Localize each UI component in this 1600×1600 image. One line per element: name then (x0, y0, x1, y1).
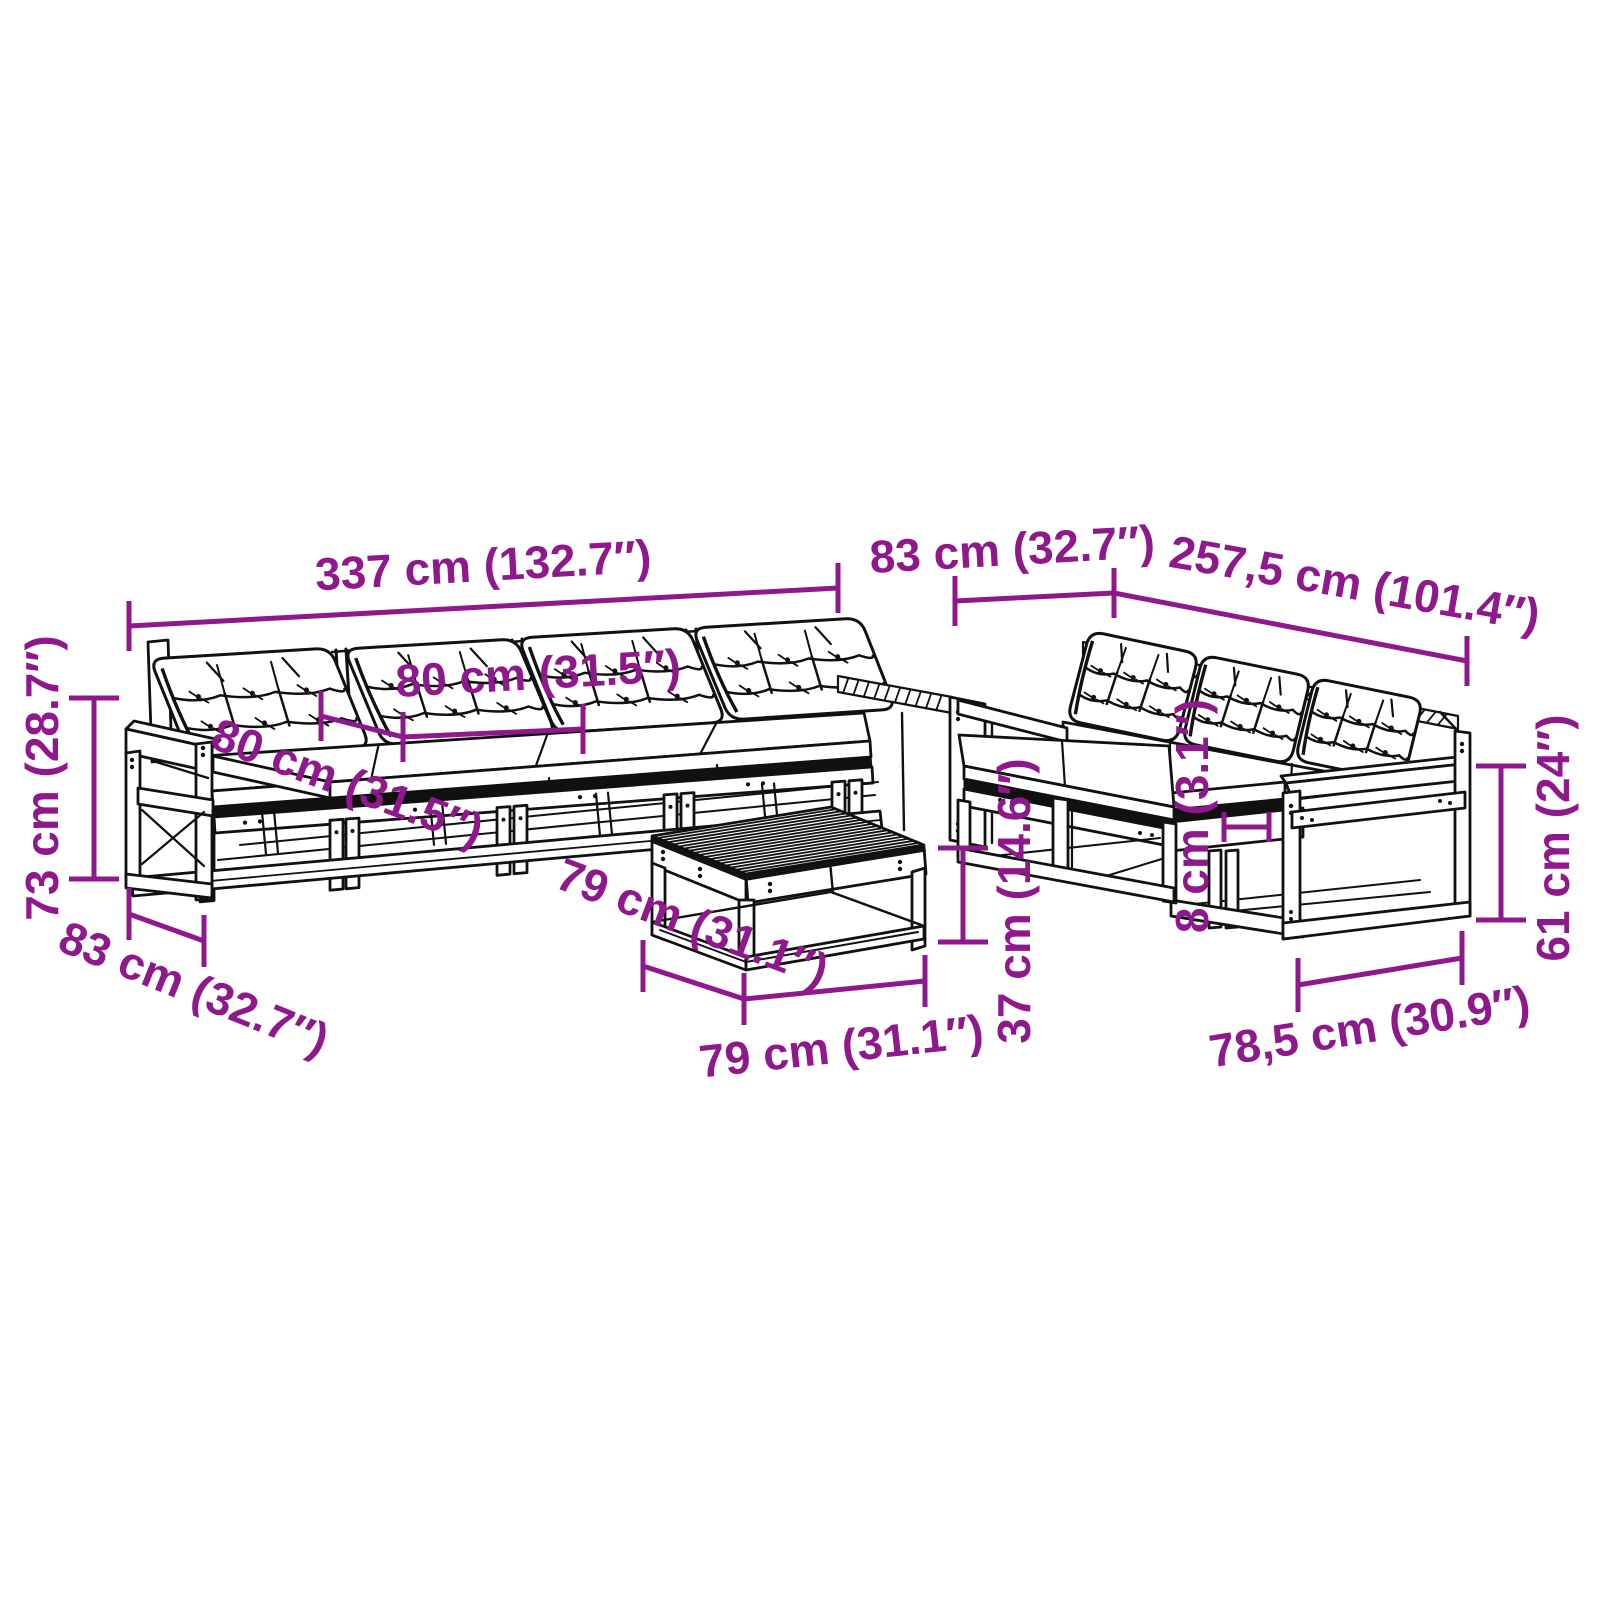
svg-text:73 cm (28.7″): 73 cm (28.7″) (16, 635, 68, 920)
svg-text:8 cm (3.1″): 8 cm (3.1″) (1166, 699, 1218, 933)
svg-text:61 cm (24″): 61 cm (24″) (1527, 714, 1579, 961)
svg-text:37 cm (14.6″): 37 cm (14.6″) (988, 758, 1040, 1043)
